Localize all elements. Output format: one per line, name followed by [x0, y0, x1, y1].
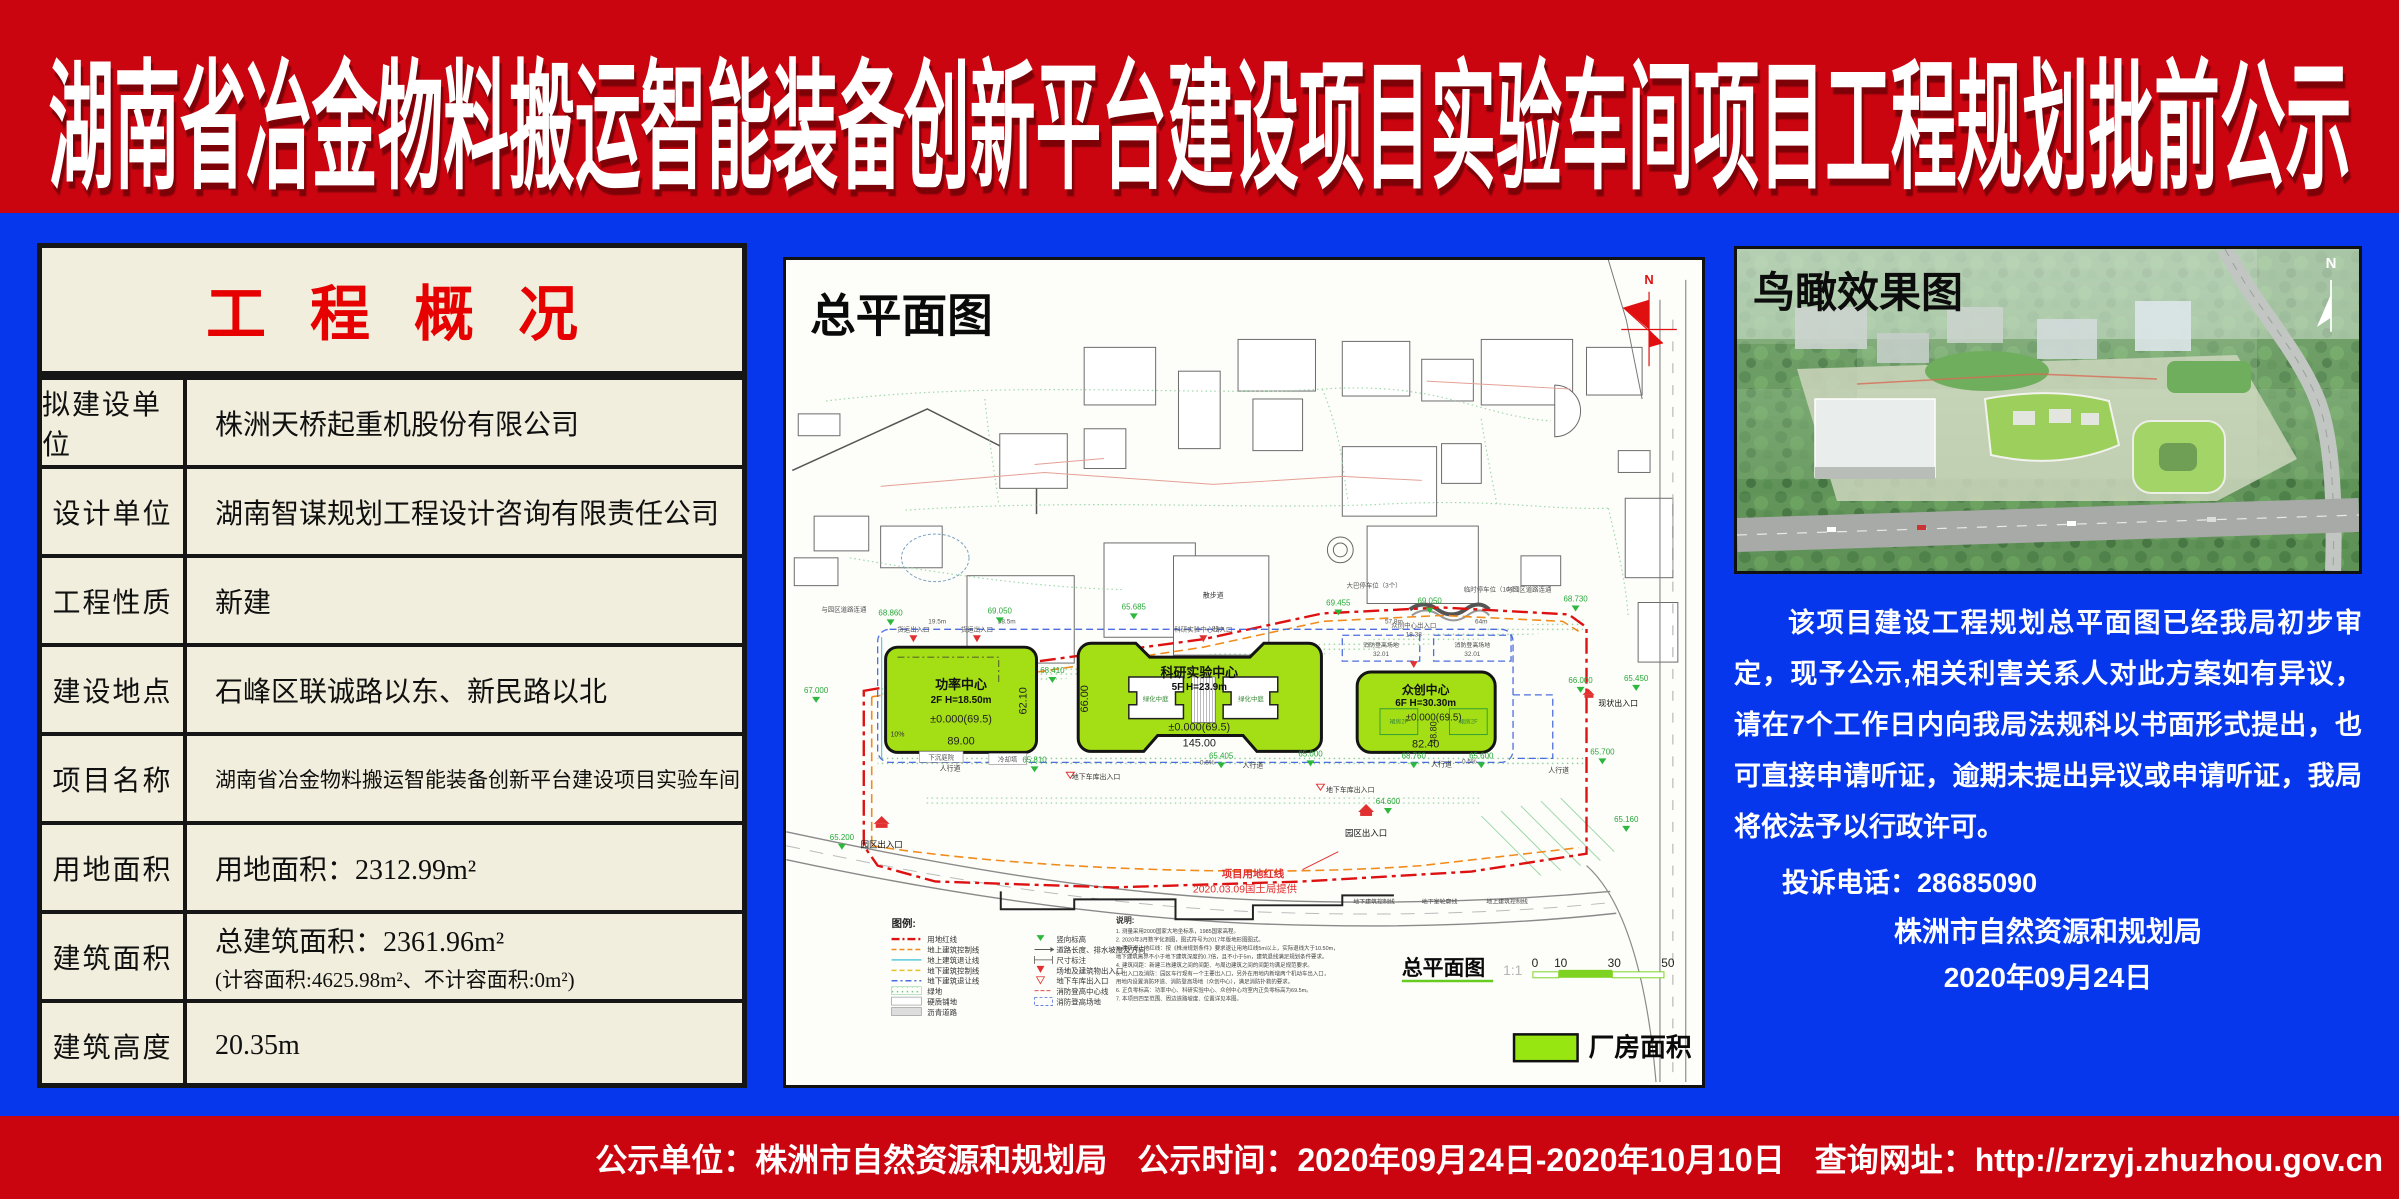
north-label: N — [1644, 272, 1653, 287]
building-elev: ±0.000(69.5) — [1168, 722, 1230, 734]
building-spec: 2F H=18.50m — [931, 695, 992, 706]
legend-item: 场地及建筑物出入口 — [1056, 965, 1123, 975]
legend-item: 硬质铺地 — [927, 997, 957, 1007]
note-line: 地下建筑离界不小于地下建筑深度的0.7倍，且不小于5m，建筑退线满足规划条件要求… — [1116, 952, 1327, 960]
row-value: 株洲天桥起重机股份有限公司 — [187, 380, 742, 465]
elevation-value: 65.200 — [830, 833, 855, 842]
dim-label: 19.5m — [928, 618, 946, 625]
poster-root: 湖南省冶金物料搬运智能装备创新平台建设项目实验车间项目工程规划批前公示 工程概况… — [0, 0, 2399, 1199]
plan-label: 32.01 — [1373, 651, 1390, 658]
dim-label: 64m — [1475, 618, 1488, 625]
legend-item: 地下建筑控制线 — [927, 965, 980, 975]
row-label: 项目名称 — [42, 736, 187, 821]
note-line: 3. 建筑退让地红线：按《株洲规划条件》要求退让用地红线5m以上，实际退线大于1… — [1116, 944, 1339, 952]
complaint-phone: 投诉电话：28685090 — [1734, 861, 2362, 900]
scale-tick: 0 — [1532, 956, 1539, 970]
elevation-value: 65.405 — [1209, 751, 1234, 760]
plan-label: 地下车库出入口 — [1072, 772, 1121, 781]
slope-label: 10% — [891, 732, 905, 739]
issue-date: 2020年09月24日 — [1734, 956, 2362, 996]
row-value: 湖南智谋规划工程设计咨询有限责任公司 — [187, 469, 742, 554]
building-spec: 6F H=30.30m — [1395, 698, 1456, 709]
building-name: 功率中心 — [935, 677, 987, 692]
footer-bar: 公示单位：株洲市自然资源和规划局 公示时间：2020年09月24日-2020年1… — [0, 1116, 2399, 1199]
north-label: N — [2326, 255, 2337, 272]
aerial-view-panel: 鸟瞰效果图 N — [1734, 246, 2362, 574]
building-name: 众创中心 — [1402, 683, 1450, 697]
elevation-value: 64.600 — [1376, 797, 1401, 806]
legend-item: 竖向标高 — [1056, 934, 1086, 944]
row-value: 用地面积：2312.99m² — [187, 825, 742, 910]
building-dim: 62.10 — [1018, 687, 1030, 714]
row-value-text: 湖南智谋规划工程设计咨询有限责任公司 — [215, 492, 742, 532]
building-spec: 5F H=23.9m — [1172, 682, 1228, 693]
legend-item: 沥青道路 — [927, 1007, 957, 1017]
header-banner: 湖南省冶金物料搬运智能装备创新平台建设项目实验车间项目工程规划批前公示 — [0, 0, 2399, 213]
area-legend: 厂房面积 — [1514, 1033, 1692, 1062]
plan-label: 与园区道路连通 — [821, 604, 867, 613]
notice-block: 该项目建设工程规划总平面图已经我局初步审定，现予公示,相关利害关系人对此方案如有… — [1734, 598, 2362, 996]
plan-label: 人行道 — [940, 763, 961, 772]
legend-item: 绿地 — [927, 986, 942, 996]
table-row: 项目名称 湖南省冶金物料搬运智能装备创新平台建设项目实验车间 — [42, 732, 742, 821]
row-label: 建设地点 — [42, 647, 187, 732]
row-value-text: 用地面积：2312.99m² — [215, 848, 742, 888]
note-line: 2. 2020年3月数字化测图，图式符号为2017年版地形图图式。 — [1116, 936, 1264, 944]
aerial-north-arrow: N — [2311, 255, 2351, 325]
note-line: 5. 出入口及消防：园区车行现有一个主要出入口，另外在用地内新增两个机动车出入口… — [1116, 969, 1329, 977]
row-value-text: 新建 — [215, 581, 742, 621]
plan-label: 现状出入口 — [1598, 698, 1638, 708]
redline-note: 项目用地红线 — [1222, 868, 1285, 881]
elevation-value: 66.000 — [1568, 676, 1593, 685]
elevation-value: 65.600 — [1469, 751, 1494, 760]
plan-label: 下沉庭院 — [928, 752, 954, 761]
row-label: 拟建设单位 — [42, 380, 187, 465]
row-value-text: 总建筑面积：2361.96m² — [215, 920, 742, 960]
overview-title: 工程概况 — [42, 248, 742, 376]
dim-label: 81m — [1212, 625, 1225, 632]
footer-unit: 公示单位：株洲市自然资源和规划局 — [595, 1135, 1107, 1181]
elevation-value: 68.860 — [878, 608, 903, 617]
podium-label: 裙房2F — [1459, 718, 1478, 726]
courtyard-label: 绿化中庭 — [1143, 694, 1169, 703]
elevation-value: 67.000 — [804, 686, 829, 695]
site-plan-drawing: 功率中心 2F H=18.50m ±0.000(69.5) 89.00 62.1… — [786, 260, 1702, 1085]
row-value: 20.35m — [187, 1003, 742, 1088]
plan-label: 冷却塔 — [998, 754, 1018, 763]
note-line: 1. 测量采用2000国家大地坐标系，1985国家高程。 — [1116, 927, 1239, 935]
row-value: 总建筑面积：2361.96m² (计容面积:4625.98m²、不计容面积:0m… — [187, 914, 742, 999]
table-row: 设计单位 湖南智谋规划工程设计咨询有限责任公司 — [42, 465, 742, 554]
table-row: 建筑高度 20.35m — [42, 999, 742, 1088]
plan-label: 临时停车位（10个） — [1464, 585, 1523, 594]
site-plan-panel: 功率中心 2F H=18.50m ±0.000(69.5) 89.00 62.1… — [783, 257, 1705, 1088]
redline-note: 2020.03.09国土局提供 — [1193, 882, 1297, 895]
issuing-organization: 株洲市自然资源和规划局 — [1734, 910, 2362, 950]
slope-label: 0.6% — [1200, 759, 1215, 766]
table-row: 建筑面积 总建筑面积：2361.96m² (计容面积:4625.98m²、不计容… — [42, 910, 742, 999]
scale-bar: 总平面图 1:1 0 10 30 50 — [1402, 956, 1675, 982]
note-line: 7. 本项目四至范围、周边道路坡度、位置详见本图。 — [1116, 995, 1242, 1003]
legend-item: 地上建筑控制线 — [927, 944, 980, 954]
plan-label: 园区出入口 — [861, 840, 903, 850]
plan-title: 总平面图 — [810, 290, 993, 341]
plan-label: 消防登高场地 — [1363, 641, 1399, 649]
scale-ratio: 1:1 — [1503, 962, 1523, 978]
table-row: 拟建设单位 株洲天桥起重机股份有限公司 — [42, 376, 742, 465]
building-dim: 48.80 — [1429, 721, 1439, 743]
elevation-value: 68.730 — [1563, 595, 1588, 604]
elevation-value: 68.410 — [1040, 666, 1065, 675]
footer-time: 公示时间：2020年09月24日-2020年10月10日 — [1137, 1135, 1784, 1181]
plan-label: 地下车库出入口 — [1326, 785, 1375, 794]
elevation-value: 65.700 — [1590, 747, 1615, 756]
elevation-value: 65.160 — [1614, 815, 1639, 824]
row-label: 建筑面积 — [42, 914, 187, 999]
building-dim: 89.00 — [947, 735, 974, 747]
plan-label: 人行道 — [1431, 759, 1452, 768]
plan-label: 货运出入口 — [961, 624, 993, 633]
project-overview-panel: 工程概况 拟建设单位 株洲天桥起重机股份有限公司 设计单位 湖南智谋规划工程设计… — [37, 243, 747, 1088]
scale-tick: 10 — [1554, 956, 1568, 970]
elevation-value: 65.450 — [1624, 674, 1649, 683]
building-name: 科研实验中心 — [1161, 665, 1238, 680]
plan-label: 大巴停车位（3个） — [1347, 581, 1402, 590]
row-value: 湖南省冶金物料搬运智能装备创新平台建设项目实验车间 — [187, 736, 742, 821]
legend-item: 地上建筑退让线 — [927, 955, 980, 965]
legend-item: 用地红线 — [927, 934, 957, 944]
row-value: 石峰区联诚路以东、新民路以北 — [187, 647, 742, 732]
elevation-value: 69.050 — [988, 606, 1013, 615]
elevation-value: 65.685 — [1122, 602, 1147, 611]
plan-notes: 说明: 1. 测量采用2000国家大地坐标系，1985国家高程。 2. 2020… — [1116, 915, 1339, 1002]
legend-item: 地下建筑退让线 — [927, 976, 980, 986]
notes-title: 说明: — [1116, 915, 1135, 925]
note-line: 用地内设置消防环道、消防登高场地（众创中心），满足消防扑救的要求。 — [1116, 978, 1293, 986]
building-elev: ±0.000(69.5) — [930, 714, 992, 726]
row-label: 工程性质 — [42, 558, 187, 643]
building-dim: 66.00 — [1079, 685, 1091, 712]
plan-label: 消防登高场地 — [1455, 641, 1491, 649]
north-arrow-icon — [2311, 272, 2351, 342]
row-value-text: 湖南省冶金物料搬运智能装备创新平台建设项目实验车间 — [215, 764, 742, 794]
plan-label: 18.38 — [1406, 631, 1423, 638]
elevation-value: 69.050 — [1418, 597, 1443, 606]
scale-tick: 30 — [1608, 956, 1622, 970]
table-row: 工程性质 新建 — [42, 554, 742, 643]
table-row: 用地面积 用地面积：2312.99m² — [42, 821, 742, 910]
legend-item: 尺寸标注 — [1056, 955, 1086, 965]
plan-label: 地下室轮廓线 — [1422, 897, 1458, 905]
plan-label: 散步道 — [1203, 591, 1224, 600]
plan-label: 货运出入口 — [897, 624, 929, 633]
plan-label: 园区出入口 — [1345, 828, 1387, 838]
row-label: 用地面积 — [42, 825, 187, 910]
aerial-title: 鸟瞰效果图 — [1753, 259, 1963, 320]
note-line: 4. 建筑间距：新建三栋建筑之间的间距、与周边建筑之间的间距均满足规范要求。 — [1116, 961, 1313, 969]
plan-label: 地下建筑控制线 — [1353, 897, 1395, 905]
row-label: 建筑高度 — [42, 1003, 187, 1088]
elevation-value: 65.000 — [1298, 749, 1323, 758]
courtyard-label: 绿化中庭 — [1238, 694, 1264, 703]
row-value: 新建 — [187, 558, 742, 643]
legend-item: 消防登高场地 — [1056, 997, 1101, 1007]
leader-line — [1303, 852, 1339, 870]
building-dim: 145.00 — [1183, 737, 1216, 749]
note-line: 6. 正负零标高：功率中心、科研实验中心、众创中心均室内正负零标高为69.5m。 — [1116, 986, 1312, 994]
notice-paragraph: 该项目建设工程规划总平面图已经我局初步审定，现予公示,相关利害关系人对此方案如有… — [1734, 598, 2362, 853]
row-label: 设计单位 — [42, 469, 187, 554]
page-title: 湖南省冶金物料搬运智能装备创新平台建设项目实验车间项目工程规划批前公示 — [48, 0, 2351, 217]
legend-item: 地下车库出入口 — [1056, 976, 1108, 986]
area-legend-label: 厂房面积 — [1588, 1033, 1691, 1062]
plan-label: 人行道 — [1548, 765, 1569, 774]
row-value-text: 株洲天桥起重机股份有限公司 — [215, 403, 742, 443]
podium-label: 裙房2F — [1389, 718, 1408, 726]
scale-name: 总平面图 — [1402, 956, 1485, 980]
plan-label: 地上建筑控制线 — [1486, 897, 1528, 905]
row-value-subtext: (计容面积:4625.98m²、不计容面积:0m²) — [215, 964, 742, 994]
retaining-wall — [1001, 891, 1394, 919]
legend-title: 图例: — [892, 917, 916, 930]
elevation-value: 69.455 — [1326, 598, 1351, 607]
dim-label: 57.8m — [1385, 618, 1403, 625]
table-row: 建设地点 石峰区联诚路以东、新民路以北 — [42, 643, 742, 732]
elevation-value: 65.810 — [1022, 755, 1047, 764]
plan-legend: 图例: 用地红线 地上建筑控制线 地上建筑退让线 地下建筑控制线 地下建筑退让线… — [892, 917, 1146, 1017]
plan-label: 32.01 — [1464, 651, 1481, 658]
legend-item: 消防登高中心线 — [1056, 986, 1109, 996]
footer-url: 查询网址：http://zrzyj.zhuzhou.gov.cn — [1815, 1135, 2383, 1181]
row-value-text: 石峰区联诚路以东、新民路以北 — [215, 670, 742, 710]
scale-tick: 50 — [1661, 956, 1675, 970]
plan-label: 人行道 — [1243, 760, 1264, 769]
elevation-value: 68.760 — [1402, 751, 1427, 760]
row-value-text: 20.35m — [215, 1030, 742, 1062]
